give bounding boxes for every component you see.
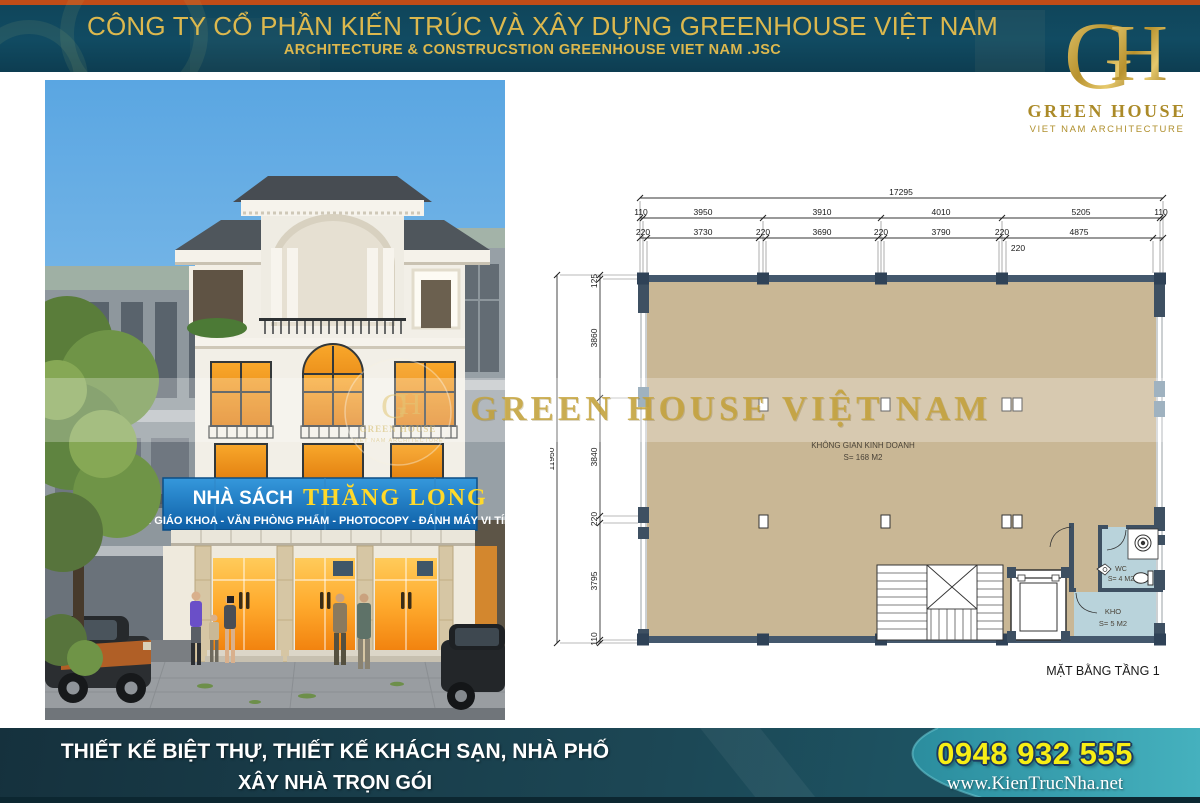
dim-label: 220 — [589, 512, 599, 526]
footer-bottom-strip — [0, 797, 1200, 803]
gh-monogram-icon: G H — [1022, 2, 1192, 102]
sign-name: THĂNG LONG — [303, 484, 488, 511]
dim-label: 3790 — [932, 227, 951, 237]
sign-prefix: NHÀ SÁCH — [193, 487, 293, 509]
dim-label: 3840 — [589, 447, 599, 466]
room-main-area: S= 168 M2 — [844, 453, 883, 462]
page: CÔNG TY CỔ PHẦN KIẾN TRÚC VÀ XÂY DỰNG GR… — [0, 0, 1200, 803]
dim-label: 110 — [589, 632, 599, 646]
bookstore-signboard: NHÀ SÁCH THĂNG LONG SÁCH GIÁO KHOA - VĂN… — [120, 478, 505, 546]
storefront — [163, 546, 475, 662]
elevator — [1007, 567, 1070, 642]
room-kho-label: KHO — [1105, 607, 1121, 616]
logo-name: GREEN HOUSE — [1022, 101, 1192, 122]
dim-label: 125 — [589, 274, 599, 288]
room-wc-area: S= 4 M2 — [1108, 576, 1134, 583]
dim-label: 110 — [634, 207, 648, 217]
dim-label: 3730 — [694, 227, 713, 237]
dim-label: 3910 — [813, 207, 832, 217]
dim-total-width: 17295 — [889, 187, 913, 197]
staircase — [877, 565, 1003, 640]
footer-website: www.KienTrucNha.net — [930, 773, 1140, 795]
company-title: CÔNG TY CỔ PHẦN KIẾN TRÚC VÀ XÂY DỰNG GR… — [0, 11, 1085, 42]
building-render: NHÀ SÁCH THĂNG LONG SÁCH GIÁO KHOA - VĂN… — [45, 80, 505, 720]
monogram-h: H — [1110, 10, 1168, 98]
dim-label: 220 — [756, 227, 770, 237]
dim-label: 3860 — [589, 328, 599, 347]
watermark-monogram-h: H — [399, 386, 421, 421]
floor-plan: 17295 110 3950 3910 4010 5205 110 220 37… — [550, 185, 1200, 695]
dim-label: 3950 — [694, 207, 713, 217]
dim-label: 4875 — [1070, 227, 1089, 237]
footer-phone-number: 0948 932 555 — [930, 736, 1140, 772]
company-subtitle: ARCHITECTURE & CONSTRUCSTION GREENHOUSE … — [0, 42, 1065, 58]
dim-label: 3690 — [813, 227, 832, 237]
dim-label: 110 — [1154, 207, 1168, 217]
dim-label: 220 — [995, 227, 1009, 237]
dim-label: 220 — [874, 227, 888, 237]
plan-title: MẶT BẰNG TẦNG 1 — [1046, 663, 1160, 678]
footer-banner: THIẾT KẾ BIỆT THỰ, THIẾT KẾ KHÁCH SẠN, N… — [0, 728, 1200, 803]
dim-label: 3795 — [589, 571, 599, 590]
dim-label: 4010 — [932, 207, 951, 217]
watermark-logo-name: GREEN HOUSE — [360, 424, 437, 434]
dim-label: 220 — [1011, 243, 1025, 253]
company-logo: G H GREEN HOUSE VIET NAM ARCHITECTURE — [1022, 2, 1192, 152]
room-wc-label: WC — [1115, 566, 1127, 573]
dim-label: 5205 — [1072, 207, 1091, 217]
dim-label: 220 — [636, 227, 650, 237]
sign-services: SÁCH GIÁO KHOA - VĂN PHÒNG PHẨM - PHOTOC… — [120, 514, 505, 527]
dim-total-height: 11950 — [550, 447, 556, 470]
footer-services-line2: XÂY NHÀ TRỌN GÓI — [60, 772, 610, 795]
watermark-logo-tagline: VIET NAM ARCHITECTURE — [352, 438, 443, 444]
footer-services-line1: THIẾT KẾ BIỆT THỰ, THIẾT KẾ KHÁCH SẠN, N… — [60, 740, 610, 764]
room-kho-area: S= 5 M2 — [1099, 619, 1127, 628]
logo-tagline: VIET NAM ARCHITECTURE — [1022, 124, 1192, 135]
room-main-label: KHÔNG GIAN KINH DOANH — [811, 441, 915, 450]
header-banner: CÔNG TY CỔ PHẦN KIẾN TRÚC VÀ XÂY DỰNG GR… — [0, 0, 1200, 72]
photo-watermark-gh-icon: G H GREEN HOUSE VIET NAM ARCHITECTURE — [345, 359, 451, 465]
